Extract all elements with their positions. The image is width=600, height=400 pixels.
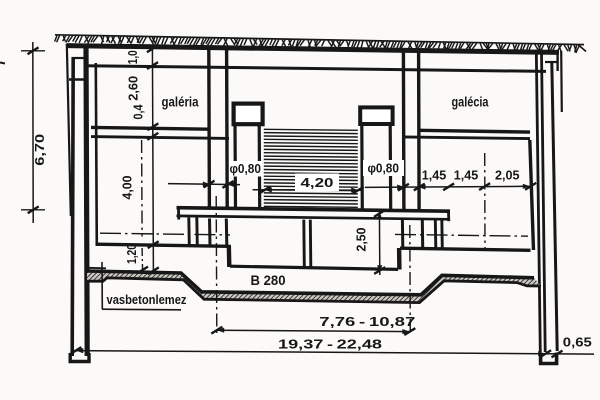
svg-text:φ0,80: φ0,80 xyxy=(367,161,399,176)
svg-text:1,20: 1,20 xyxy=(125,244,139,264)
svg-text:4,00: 4,00 xyxy=(120,175,134,199)
svg-text:galéria: galéria xyxy=(162,94,199,110)
svg-text:0,65: 0,65 xyxy=(563,336,592,350)
svg-text:φ0,80: φ0,80 xyxy=(229,161,261,176)
svg-text:0,4: 0,4 xyxy=(132,104,146,119)
svg-text:B 280: B 280 xyxy=(251,273,286,288)
svg-text:4,20: 4,20 xyxy=(301,175,334,190)
svg-text:1,45: 1,45 xyxy=(454,168,479,183)
svg-text:1,0: 1,0 xyxy=(126,50,140,64)
svg-text:2,05: 2,05 xyxy=(495,168,520,183)
svg-text:6,70: 6,70 xyxy=(32,134,47,166)
svg-text:2,50: 2,50 xyxy=(354,228,369,252)
svg-text:7,76 - 10,87: 7,76 - 10,87 xyxy=(319,314,415,329)
svg-text:1,45: 1,45 xyxy=(422,167,447,182)
svg-text:galécia: galécia xyxy=(452,95,489,111)
svg-text:2,60: 2,60 xyxy=(127,76,141,101)
svg-text:vasbetonlemez: vasbetonlemez xyxy=(107,292,187,307)
svg-text:19,37 - 22,48: 19,37 - 22,48 xyxy=(278,336,382,351)
